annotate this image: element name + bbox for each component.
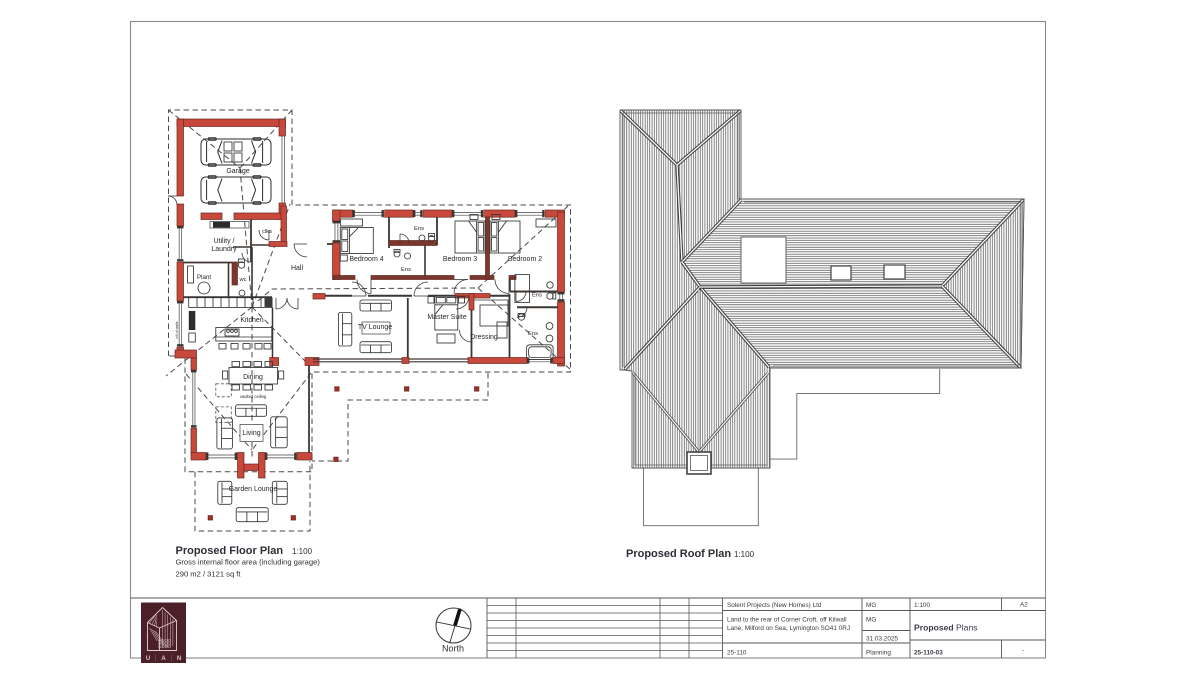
svg-text:U: U xyxy=(146,656,150,662)
svg-text:N: N xyxy=(177,656,181,662)
svg-text:clks: clks xyxy=(262,229,272,235)
svg-text:31.03.2025: 31.03.2025 xyxy=(866,636,898,643)
svg-text:Plant: Plant xyxy=(197,274,211,281)
svg-text:A2: A2 xyxy=(1020,602,1028,609)
svg-text:Master Suite: Master Suite xyxy=(427,314,466,321)
svg-text:Ens: Ens xyxy=(414,226,424,232)
svg-text:Hall: Hall xyxy=(291,265,304,272)
svg-text:Laundry: Laundry xyxy=(211,246,237,253)
svg-text:MG: MG xyxy=(866,617,876,624)
svg-text:25-110-03: 25-110-03 xyxy=(914,650,943,657)
svg-text:Solent Projects (New Homes) Lt: Solent Projects (New Homes) Ltd xyxy=(727,602,822,609)
svg-text:vaulted ceiling: vaulted ceiling xyxy=(240,394,267,399)
svg-text:Utility /: Utility / xyxy=(214,238,235,245)
svg-text:Proposed Roof Plan: Proposed Roof Plan xyxy=(626,548,731,560)
svg-text:Planning: Planning xyxy=(866,650,891,657)
svg-text:Land to the rear of Corner Cro: Land to the rear of Corner Croft, off Ki… xyxy=(727,617,847,624)
svg-text:1:100: 1:100 xyxy=(734,550,755,559)
svg-text:TV Lounge: TV Lounge xyxy=(358,324,392,331)
svg-text:Dining: Dining xyxy=(243,374,263,381)
svg-text:Ens: Ens xyxy=(532,293,542,299)
svg-text:Bedroom 3: Bedroom 3 xyxy=(443,256,477,263)
svg-text:Garden Lounge: Garden Lounge xyxy=(229,486,278,493)
svg-text:Garage: Garage xyxy=(226,168,249,175)
svg-text:Dressing: Dressing xyxy=(470,334,498,341)
svg-text:Ens: Ens xyxy=(528,331,538,337)
svg-text:-: - xyxy=(1022,648,1024,655)
svg-text:Proposed Plans: Proposed Plans xyxy=(914,623,978,633)
svg-text:A: A xyxy=(161,656,166,662)
svg-text:cill of walls: cill of walls xyxy=(175,321,179,338)
svg-text:1:100: 1:100 xyxy=(292,547,313,556)
svg-text:wc: wc xyxy=(238,277,246,283)
svg-text:North: North xyxy=(442,644,464,654)
svg-text:Proposed Floor Plan: Proposed Floor Plan xyxy=(176,545,284,557)
svg-text:Gross internal floor area (inc: Gross internal floor area (including gar… xyxy=(176,558,321,567)
svg-text:25-110: 25-110 xyxy=(727,650,747,657)
svg-text:Lane, Milford on Sea, Lymingto: Lane, Milford on Sea, Lymington SO41 0RJ xyxy=(727,625,850,632)
svg-text:1:100: 1:100 xyxy=(914,602,930,609)
svg-text:MG: MG xyxy=(866,602,876,609)
svg-text:Ens: Ens xyxy=(401,267,411,273)
svg-text:Bedroom 2: Bedroom 2 xyxy=(508,256,542,263)
svg-text:Kitchen: Kitchen xyxy=(240,317,263,324)
svg-text:Bedroom 4: Bedroom 4 xyxy=(349,256,383,263)
svg-text:290 m2 / 3121 sq ft: 290 m2 / 3121 sq ft xyxy=(176,570,242,579)
svg-text:Living: Living xyxy=(242,430,260,437)
